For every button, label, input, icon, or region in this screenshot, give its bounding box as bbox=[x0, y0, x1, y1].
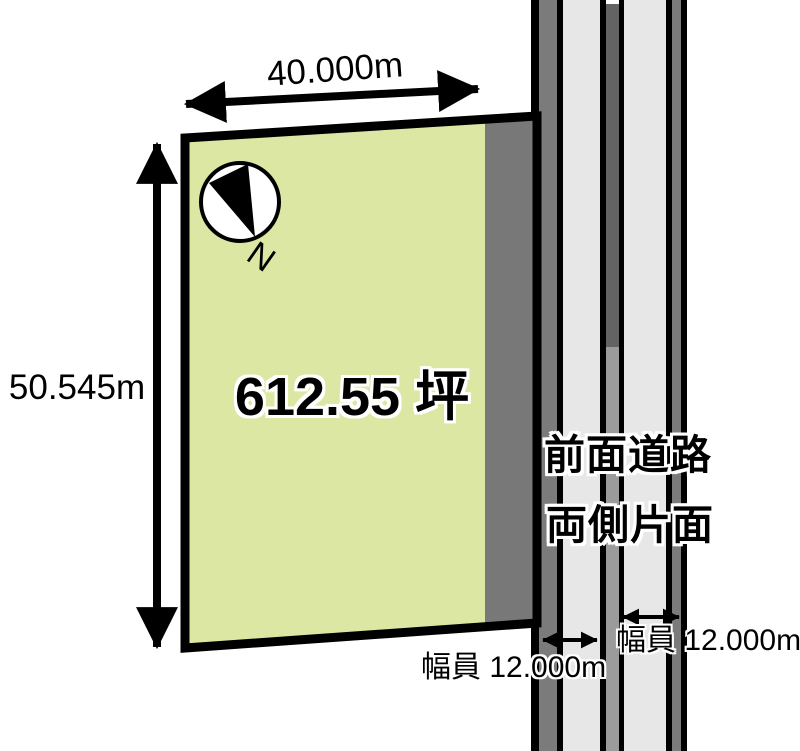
road-median-gap bbox=[606, 0, 619, 4]
parcel-depth-label: 50.545m bbox=[2, 370, 152, 405]
compass bbox=[201, 163, 279, 241]
road-width-label-right: 幅員 12.000m bbox=[616, 626, 800, 656]
parcel-right-strip bbox=[485, 116, 537, 627]
width-dimension-arrow bbox=[186, 89, 478, 104]
road-note-line2: 両側片面 bbox=[546, 505, 714, 546]
road-width-label-left: 幅員 12.000m bbox=[421, 653, 606, 683]
site-plan-diagram: 40.000m 50.545m 612.55 坪 N 前面道路 両側片面 幅員 … bbox=[0, 0, 800, 751]
road-note-line1: 前面道路 bbox=[544, 435, 712, 476]
parcel-area-label: 612.55 坪 bbox=[222, 370, 482, 424]
road-median-lower bbox=[606, 347, 619, 751]
road-median-upper bbox=[606, 4, 619, 347]
